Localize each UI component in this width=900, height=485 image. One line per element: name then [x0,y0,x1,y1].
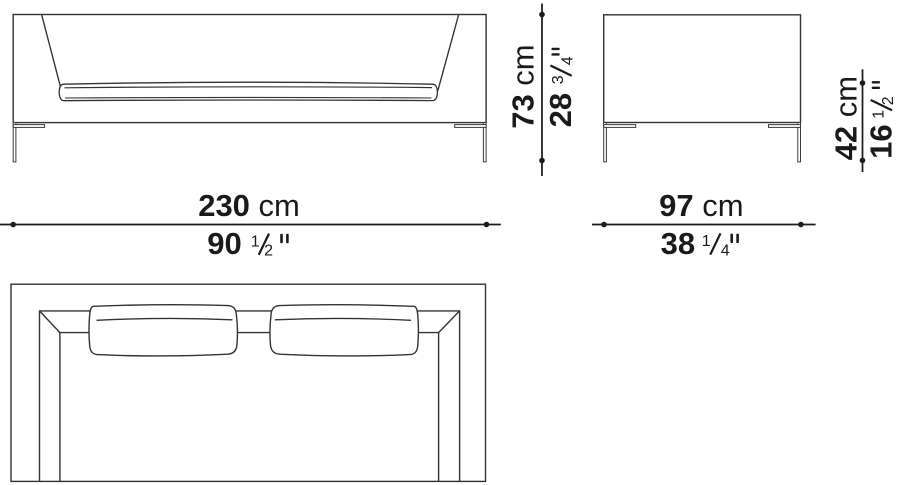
svg-text:90: 90 [207,226,241,261]
svg-text:28: 28 [543,93,578,127]
svg-text:73 cm: 73 cm [506,44,541,128]
svg-text:38: 38 [661,226,695,261]
svg-text:42 cm: 42 cm [829,76,864,160]
svg-text:1: 1 [251,233,260,250]
svg-text:1: 1 [870,110,887,119]
svg-text:16: 16 [863,124,898,158]
svg-text:1: 1 [702,233,711,250]
svg-text:3: 3 [550,75,567,84]
svg-text:97 cm: 97 cm [659,188,743,223]
svg-text:4: 4 [721,243,730,260]
svg-text:2: 2 [264,243,273,260]
svg-text:230 cm: 230 cm [198,188,300,223]
svg-text:2: 2 [880,96,897,105]
svg-text:4: 4 [560,56,577,65]
